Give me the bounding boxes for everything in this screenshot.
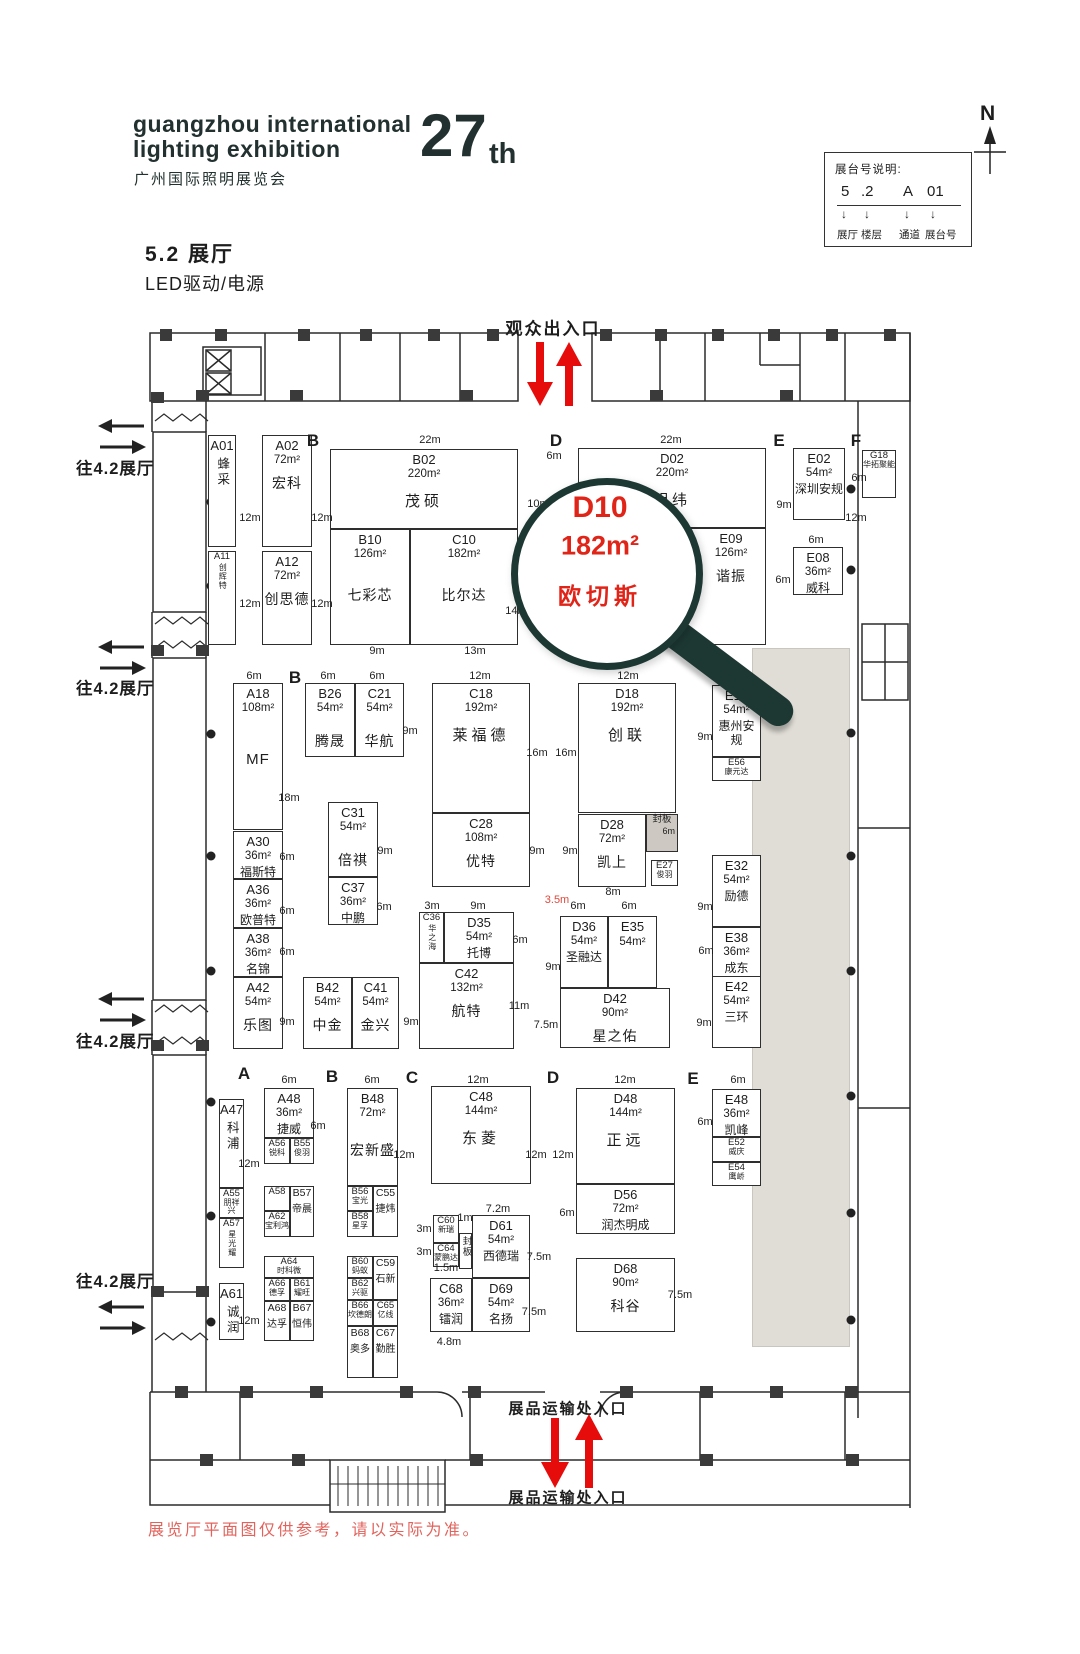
booth-C41: C4154m²金兴: [352, 977, 399, 1049]
booth-name: 亿线: [378, 1311, 394, 1319]
booth-name: 达孚: [267, 1319, 287, 1330]
direction-arrows-icon: [96, 1298, 148, 1338]
dimension-label: 9m: [545, 961, 560, 973]
dimension-label: 9m: [697, 731, 712, 743]
down-arrow-icon: ↓: [841, 207, 847, 221]
booth-id: D68: [614, 1262, 638, 1277]
booth-C65: C65亿线: [373, 1300, 398, 1326]
booth-area: 108m²: [242, 702, 275, 715]
booth-area: 54m²: [488, 1297, 514, 1310]
freight-arrow-down-icon: [541, 1418, 569, 1488]
booth-id: B10: [358, 533, 381, 548]
booth-C60: C60新瑞: [433, 1215, 459, 1243]
entrance-arrow-down-icon: [527, 342, 553, 406]
booth-B02: B02220m²茂硕: [330, 449, 518, 529]
booth-A61: A61诚润: [219, 1283, 244, 1340]
booth-name: 星光耀: [227, 1230, 235, 1257]
dimension-label: 3m: [416, 1223, 431, 1235]
dimension-label: 6m: [808, 534, 823, 546]
dimension-label: 6m: [698, 945, 713, 957]
booth-E56: E56康元达: [712, 757, 761, 781]
booth-area: 220m²: [408, 468, 441, 481]
booth-E42: E4254m²三环: [712, 976, 761, 1048]
dimension-label: 3m: [416, 1246, 431, 1258]
booth-id: D61: [489, 1219, 513, 1234]
dimension-label: 9m: [402, 725, 417, 737]
dimension-label: 12m: [393, 1149, 414, 1161]
to-hall-4-2-label: 往4.2展厅: [76, 675, 154, 699]
booth-A56: A56锐科: [264, 1138, 290, 1164]
booth-B42: B4254m²中金: [303, 977, 352, 1049]
booth-A11: A11创辉特: [208, 551, 236, 645]
booth-name: 三环: [724, 1011, 748, 1025]
booth-C48: C48144m²东菱: [431, 1086, 531, 1184]
booth-id: C42: [455, 967, 479, 982]
visitor-entrance-label: 观众出入口: [506, 315, 601, 340]
booth-D69: D6954m²名扬: [472, 1278, 530, 1332]
freight-entrance-label-bottom: 展品运输处入口: [508, 1487, 627, 1508]
booth-id: B42: [316, 981, 339, 996]
booth-E35: E3554m²: [608, 916, 657, 988]
booth-C10: C10182m²比尔达: [410, 529, 518, 645]
booth-id: C36: [423, 913, 440, 923]
booth-A38: A3836m²名锦: [233, 928, 283, 977]
booth-E52: E52威庆: [712, 1137, 761, 1162]
dimension-label-red: 3.5m: [545, 894, 569, 906]
booth-A57: A57星光耀: [219, 1218, 244, 1268]
dimension-label: 7.5m: [527, 1251, 551, 1263]
booth-name: 创联: [608, 727, 646, 744]
dimension-label: 7.5m: [668, 1289, 692, 1301]
dimension-label: 6m: [621, 900, 636, 912]
booth-area: 72m²: [274, 570, 300, 583]
booth-name: 蚂蚁: [352, 1267, 368, 1275]
booth-area: 54m²: [619, 936, 645, 949]
booth-name: 德孚: [269, 1289, 285, 1297]
booth-name: 宏新盛: [350, 1142, 395, 1158]
booth-id: C10: [452, 533, 476, 548]
section-letter: D: [550, 431, 562, 451]
booth-A01: A01蜂采: [208, 435, 236, 547]
dimension-label: 3m: [424, 900, 439, 912]
booth-name: 捷威: [277, 1123, 301, 1137]
dimension-label: 7.5m: [522, 1306, 546, 1318]
booth-area: 72m²: [612, 1203, 638, 1216]
dimension-label: 12m: [525, 1149, 546, 1161]
booth-name: 航特: [452, 1003, 482, 1019]
booth-name: 威科: [806, 582, 830, 596]
freight-entrance-label-top: 展品运输处入口: [508, 1398, 627, 1419]
booth-B55: B55俊羽: [290, 1138, 314, 1164]
booth-id: A12: [275, 555, 298, 570]
booth-id: A48: [277, 1092, 300, 1107]
booth-area: 192m²: [465, 702, 498, 715]
booth-area: 54m²: [317, 702, 343, 715]
dimension-label: 6m: [570, 900, 585, 912]
booth-name: 倍祺: [338, 852, 368, 868]
booth-D68: D6890m²科谷: [576, 1258, 675, 1332]
dimension-label: 9m: [529, 845, 544, 857]
booth-area: 54m²: [245, 996, 271, 1009]
booth-area: 54m²: [362, 996, 388, 1009]
booth-B60: B60蚂蚁: [347, 1256, 373, 1278]
down-arrow-icon: ↓: [904, 207, 910, 221]
booth-D42: D4290m²星之佑: [560, 988, 670, 1048]
booth-id: D02: [660, 452, 684, 467]
booth-id: A61: [220, 1287, 243, 1302]
section-letter: F: [851, 431, 861, 451]
dimension-label: 9m: [697, 901, 712, 913]
dimension-label: 9m: [403, 1016, 418, 1028]
section-letter: B: [326, 1067, 338, 1087]
booth-name: 润杰明成: [601, 1219, 649, 1233]
dimension-label: 7.2m: [486, 1203, 510, 1215]
booth-id: 封板: [461, 1236, 471, 1257]
booth-name: 正远: [606, 1132, 644, 1149]
booth-name: 创思德: [265, 591, 310, 607]
dimension-label: 1m: [457, 1212, 472, 1224]
booth-A68: A68达孚: [264, 1301, 290, 1341]
booth-name: 蜂采: [215, 457, 229, 488]
booth-id: D48: [614, 1092, 638, 1107]
dimension-label: 9m: [369, 645, 384, 657]
booth-id: C31: [341, 806, 365, 821]
booth-area: 182m²: [448, 548, 481, 561]
booth-id: D42: [603, 992, 627, 1007]
booth-A64: A64时科微: [264, 1256, 314, 1278]
legend-code-aisle: A: [903, 183, 913, 200]
section-letter: E: [687, 1069, 698, 1089]
booth-name: MF: [246, 751, 270, 768]
booth-name: 宝利鸿: [265, 1222, 289, 1230]
booth-name: 镭润: [439, 1313, 463, 1327]
booth-id: A18: [246, 687, 269, 702]
booth-id: C21: [368, 687, 392, 702]
dimension-label: 6m: [320, 670, 335, 682]
dimension-label: 12m: [238, 1315, 259, 1327]
booth-C59: C59石新: [373, 1256, 398, 1300]
booth-C55: C55捷炜: [373, 1186, 398, 1237]
booth-name: 名扬: [489, 1313, 513, 1327]
booth-area: 126m²: [715, 547, 748, 560]
booth-name: 帝晨: [292, 1204, 312, 1215]
dimension-label: 16m: [555, 747, 576, 759]
booth-id: D18: [615, 687, 639, 702]
dimension-label: 12m: [614, 1074, 635, 1086]
dimension-label: 6m: [559, 1207, 574, 1219]
booth-id: B48: [361, 1092, 384, 1107]
booth-id: B02: [412, 453, 435, 468]
booth-id: A42: [246, 981, 269, 996]
booth-id: 封板: [652, 815, 671, 825]
booth-E02: E0254m²深圳安规: [793, 448, 845, 520]
booth-name: 捷炜: [376, 1204, 396, 1215]
legend-code-hall: 5: [841, 183, 849, 200]
dimension-label: 6m: [281, 1074, 296, 1086]
dimension-label: 6m: [376, 901, 391, 913]
booth-E38: E3836m²成东: [712, 927, 761, 977]
booth-name: 比尔达: [442, 587, 487, 603]
booth-G18: G18华拓聚能: [862, 450, 896, 498]
booth-area: 54m²: [314, 996, 340, 1009]
booth-D61: D6154m²西德瑞: [472, 1215, 530, 1278]
booth-name: 星之佑: [593, 1028, 638, 1044]
dimension-label: 12m: [239, 598, 260, 610]
dimension-label: 4.8m: [437, 1336, 461, 1348]
booth-area: 36m²: [276, 1107, 302, 1120]
dimension-label: 7.5m: [534, 1019, 558, 1031]
booth-id: E09: [719, 532, 742, 547]
legend-title: 展台号说明:: [835, 161, 902, 177]
booth-area: 90m²: [612, 1277, 638, 1290]
booth-C28: C28108m²优特: [432, 813, 530, 887]
dimension-label: 9m: [776, 499, 791, 511]
booth-area: 36m²: [245, 850, 271, 863]
booth-A48: A4836m²捷威: [264, 1088, 314, 1138]
booth-name: 科谷: [611, 1298, 641, 1314]
legend-label-number: 展台号: [925, 227, 957, 242]
booth-area: 54m²: [340, 821, 366, 834]
booth-E27: E27俊羽: [651, 860, 678, 886]
dimension-label: 9m: [377, 845, 392, 857]
booth-A55: A55朋祥兴: [219, 1188, 244, 1218]
booth-id: A30: [246, 835, 269, 850]
booth-B48: B4872m²宏新盛: [347, 1088, 398, 1186]
booth-name: 金兴: [361, 1017, 391, 1033]
dimension-label: 12m: [311, 512, 332, 524]
booth-id: E35: [621, 920, 644, 935]
booth-D48: D48144m²正远: [576, 1088, 675, 1184]
booth-C21: C2154m²华航: [355, 683, 404, 757]
booth-id: D36: [572, 920, 596, 935]
booth-name: 恒伟: [292, 1319, 312, 1330]
booth-FB1-seal-panel: 封板6m: [646, 814, 678, 852]
booth-id: D56: [614, 1188, 638, 1203]
dimension-label: 12m: [238, 1158, 259, 1170]
dimension-label: 18m: [278, 792, 299, 804]
direction-arrows-icon: [96, 417, 148, 457]
booth-id: E42: [725, 980, 748, 995]
booth-name: 华航: [365, 733, 395, 749]
dimension-label: 9m: [470, 900, 485, 912]
booth-name: 耀旺: [294, 1289, 310, 1297]
booth-area: 36m²: [805, 566, 831, 579]
booth-id: E08: [806, 551, 829, 566]
booth-id: A36: [246, 883, 269, 898]
booth-B66: B66坎德朗: [347, 1300, 373, 1326]
booth-area: 72m²: [359, 1107, 385, 1120]
booth-B10: B10126m²七彩芯: [330, 529, 410, 645]
disclaimer-text: 展览厅平面图仅供参考，请以实际为准。: [148, 1516, 481, 1540]
section-letter: B: [307, 431, 319, 451]
dimension-label: 6m: [851, 472, 866, 484]
dimension-label: 1.5m: [434, 1262, 458, 1274]
booth-area: 54m²: [488, 1234, 514, 1247]
down-arrow-icon: ↓: [930, 207, 936, 221]
booth-A58: A58: [264, 1186, 290, 1211]
freight-arrow-up-icon: [575, 1414, 603, 1488]
booth-area: 108m²: [465, 832, 498, 845]
booth-name: 腾晟: [315, 733, 345, 749]
booth-area: 54m²: [466, 931, 492, 944]
booth-id: C55: [376, 1188, 395, 1200]
booth-C36: C36华之海: [419, 912, 444, 963]
booth-name: 华之海: [427, 924, 435, 951]
booth-D56: D5672m²润杰明成: [576, 1184, 675, 1234]
booth-area: 132m²: [450, 982, 483, 995]
booth-id: B26: [318, 687, 341, 702]
dimension-label: 13m: [464, 645, 485, 657]
booth-area: 36m²: [723, 946, 749, 959]
booth-D35: D3554m²托博: [444, 912, 514, 963]
booth-id: A57: [223, 1219, 240, 1229]
magnified-booth-id: D10: [572, 491, 627, 525]
magnified-booth-area: 182m²: [561, 531, 639, 562]
booth-name: 深圳安规: [795, 483, 843, 497]
legend-label-floor: 楼层: [861, 227, 882, 242]
booth-name: 鹰峤: [729, 1173, 745, 1181]
booth-number-legend: 展台号说明: 5 .2 A 01 ↓ ↓ ↓ ↓ 展厅 楼层 通道 展台号: [824, 152, 972, 247]
booth-name: 创辉特: [218, 563, 226, 590]
booth-name: 兴驱: [352, 1289, 368, 1297]
dimension-label: 9m: [562, 845, 577, 857]
booth-name: 华拓聚能: [863, 461, 895, 469]
booth-name: 宝光: [352, 1197, 368, 1205]
booth-area: 54m²: [723, 874, 749, 887]
booth-C67: C67勤胜: [373, 1326, 398, 1378]
section-letter: E: [773, 431, 784, 451]
booth-id: C68: [439, 1282, 463, 1297]
legend-code-number: 01: [927, 183, 944, 200]
dimension-label: 6m: [246, 670, 261, 682]
booth-name: 俊羽: [657, 871, 673, 879]
section-letter: D: [547, 1068, 559, 1088]
dimension-label: 6m: [512, 934, 527, 946]
booth-id: A68: [268, 1303, 287, 1315]
entrance-arrow-up-icon: [556, 342, 582, 406]
booth-id: C18: [469, 687, 493, 702]
booth-name: 茂硕: [405, 493, 443, 510]
dimension-label: 12m: [552, 1149, 573, 1161]
booth-A42: A4254m²乐图: [233, 977, 283, 1049]
dimension-label: 6m: [279, 851, 294, 863]
booth-area: 54m²: [723, 995, 749, 1008]
booth-B61: B61耀旺: [290, 1278, 314, 1301]
booth-E54: E54鹰峤: [712, 1162, 761, 1186]
booth-area: 36m²: [245, 947, 271, 960]
booth-C31: C3154m²倍祺: [328, 802, 378, 877]
booth-name: 名锦: [246, 963, 270, 977]
booth-name: 圣融达: [566, 951, 602, 965]
booth-A62: A62宝利鸿: [264, 1211, 290, 1237]
section-letter: C: [406, 1068, 418, 1088]
booth-name: 欧普特: [240, 914, 276, 928]
booth-name: 朋祥兴: [220, 1199, 243, 1216]
to-hall-4-2-label: 往4.2展厅: [76, 1028, 154, 1052]
booth-A47: A47科浦: [219, 1099, 244, 1188]
dimension-label: 6m: [279, 946, 294, 958]
booth-name: 中金: [313, 1017, 343, 1033]
direction-arrows-icon: [96, 638, 148, 678]
booth-area: 54m²: [806, 467, 832, 480]
dimension-label: 9m: [696, 1017, 711, 1029]
dimension-label: 9m: [279, 1016, 294, 1028]
booth-name: 凯上: [597, 854, 627, 870]
booth-id: C41: [364, 981, 388, 996]
booth-area: 36m²: [245, 898, 271, 911]
booth-id: E48: [725, 1093, 748, 1108]
booth-id: A02: [275, 439, 298, 454]
dimension-label: 6m: [730, 1074, 745, 1086]
compass-icon: [966, 124, 1014, 180]
dimension-label: 12m: [845, 512, 866, 524]
dimension-label: 6m: [546, 450, 561, 462]
floor-plan-page: guangzhou international lighting exhibit…: [0, 0, 1080, 1654]
magnified-booth-name: 欧切斯: [558, 577, 642, 611]
dimension-label: 12m: [311, 598, 332, 610]
booth-name: 奥多: [350, 1344, 370, 1355]
booth-name: 东菱: [462, 1130, 500, 1147]
section-letter: B: [289, 668, 301, 688]
dimension-label: 6m: [369, 670, 384, 682]
booth-area: 36m²: [438, 1297, 464, 1310]
booth-name: 宏科: [272, 475, 302, 491]
booth-id: E32: [725, 859, 748, 874]
booth-name: 石新: [376, 1274, 396, 1285]
booth-name: 康元达: [725, 768, 749, 776]
booth-D18: D18192m²创联: [578, 683, 676, 813]
booth-name: 坎德朗: [348, 1311, 372, 1319]
booth-E32: E3254m²励德: [712, 855, 761, 927]
booth-name: 勤胜: [376, 1344, 396, 1355]
booth-FB2-seal-panel: 封板: [459, 1233, 472, 1269]
booth-area: 54m²: [366, 702, 392, 715]
dimension-label: 6m: [279, 905, 294, 917]
booth-C18: C18192m²莱福德: [432, 683, 530, 813]
booth-name: 福斯特: [240, 866, 276, 880]
booth-D36: D3654m²圣融达: [560, 916, 608, 988]
legend-code-floor: .2: [861, 183, 874, 200]
booth-id: B57: [293, 1188, 312, 1200]
booth-C37: C3736m²中鹏: [328, 877, 378, 925]
booth-id: A58: [269, 1187, 286, 1197]
legend-label-hall: 展厅: [837, 227, 858, 242]
booth-B62: B62兴驱: [347, 1278, 373, 1300]
booth-name: 励德: [724, 890, 748, 904]
booth-A02: A0272m²宏科: [262, 435, 312, 547]
booth-id: C48: [469, 1090, 493, 1105]
legend-underline: [837, 205, 961, 206]
booth-name: 西德瑞: [483, 1250, 519, 1264]
dimension-label: 8m: [605, 886, 620, 898]
booth-id: A47: [220, 1103, 243, 1118]
booth-id: C59: [376, 1258, 395, 1270]
dimension-label: 16m: [526, 747, 547, 759]
booth-name: 惠州安规: [713, 720, 760, 748]
booth-area: 90m²: [602, 1007, 628, 1020]
booth-name: 谐振: [716, 568, 746, 584]
booth-area: 144m²: [465, 1105, 498, 1118]
booth-id: B67: [293, 1303, 312, 1315]
legend-label-aisle: 通道: [899, 227, 920, 242]
booth-area: 72m²: [274, 454, 300, 467]
booth-A66: A66德孚: [264, 1278, 290, 1301]
booth-id: D35: [467, 916, 491, 931]
dimension-label: 22m: [660, 434, 681, 446]
booth-D28: D2872m²凯上: [578, 814, 646, 887]
booth-area: 72m²: [599, 833, 625, 846]
booth-name: 时科微: [277, 1267, 301, 1275]
